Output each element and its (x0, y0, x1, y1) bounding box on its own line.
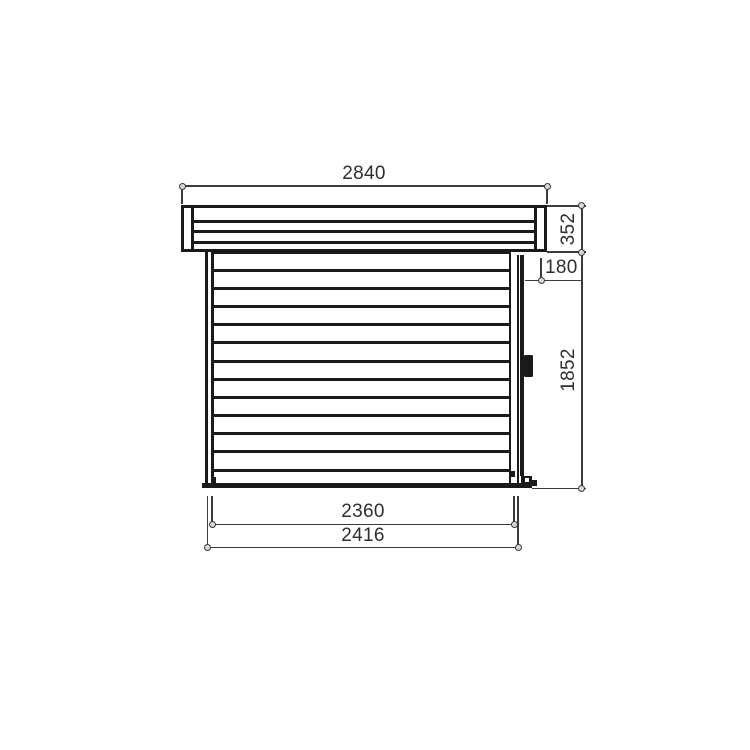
plank-line (214, 323, 510, 326)
plank-line (214, 287, 510, 290)
dimension-label-inner-width: 2360 (323, 503, 403, 521)
dimension-dot (538, 277, 545, 284)
roof-board-line (193, 220, 534, 223)
door-foot-notch (525, 478, 529, 482)
roof-board-line (193, 230, 534, 233)
dimension-dot (578, 202, 585, 209)
dimension-label-outer-width: 2416 (323, 527, 403, 545)
plank-line (214, 414, 510, 417)
shed-technical-drawing: 2840 (0, 0, 750, 750)
dimension-dot (544, 183, 551, 190)
roof-right-trim (534, 205, 547, 252)
dimension-label-roof-width: 2840 (324, 165, 404, 183)
dimension-dot (209, 521, 216, 528)
dimension-line-roof-width (182, 185, 547, 187)
door-foot-nub (532, 480, 537, 486)
plank-line (214, 450, 510, 453)
roof-board-line (193, 241, 534, 244)
door-bottom-notch (511, 471, 515, 477)
plank-line (214, 469, 510, 472)
dimension-dot (204, 544, 211, 551)
plank-line (214, 378, 510, 381)
wall-cladding (214, 252, 512, 483)
roof-left-trim (181, 205, 194, 252)
plank-line (214, 396, 510, 399)
extension-line (181, 190, 183, 204)
dimension-label-top-log: 180 (545, 259, 578, 277)
dimension-label-roof-height: 352 (560, 199, 578, 259)
corner-post-left (205, 252, 214, 483)
dimension-dot (578, 249, 585, 256)
dimension-label-wall-height: 1852 (560, 340, 578, 400)
plank-line (214, 269, 510, 272)
leader-line-top-log (525, 280, 582, 282)
dimension-line-outer-width (208, 547, 519, 549)
plank-line (214, 360, 510, 363)
roof-fascia (193, 205, 534, 252)
door-frame-edge (517, 255, 519, 483)
plank-line (214, 341, 510, 344)
dimension-dot (578, 485, 585, 492)
dimension-dot (515, 544, 522, 551)
plank-line (214, 432, 510, 435)
extension-line (546, 190, 548, 204)
plank-line (214, 305, 510, 308)
floor-sill (202, 483, 528, 488)
door-handle (524, 355, 533, 377)
dimension-dot (179, 183, 186, 190)
dimension-dot (511, 521, 518, 528)
